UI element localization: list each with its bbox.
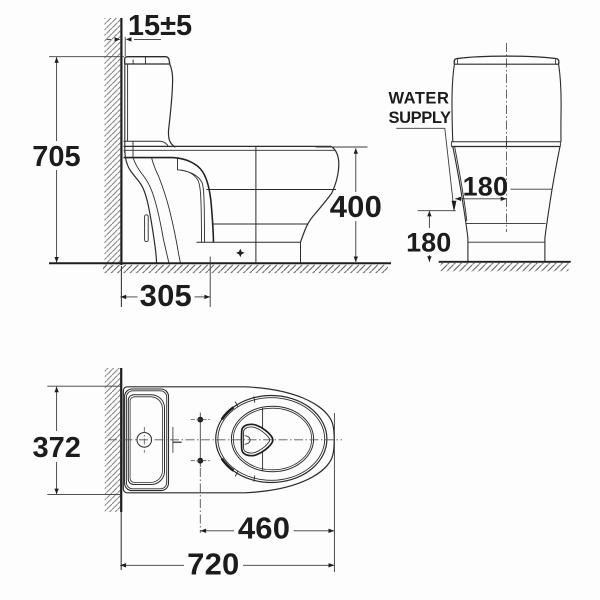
svg-text:372: 372 bbox=[33, 432, 81, 464]
svg-text:180: 180 bbox=[463, 172, 509, 202]
svg-text:460: 460 bbox=[238, 511, 290, 546]
svg-text:WATER: WATER bbox=[389, 89, 450, 107]
svg-text:305: 305 bbox=[140, 278, 192, 313]
svg-text:15±5: 15±5 bbox=[128, 10, 192, 42]
svg-text:180: 180 bbox=[406, 228, 451, 258]
svg-text:400: 400 bbox=[330, 189, 382, 224]
svg-text:705: 705 bbox=[32, 141, 80, 173]
svg-text:SUPPLY: SUPPLY bbox=[389, 109, 451, 127]
svg-text:720: 720 bbox=[187, 547, 239, 582]
